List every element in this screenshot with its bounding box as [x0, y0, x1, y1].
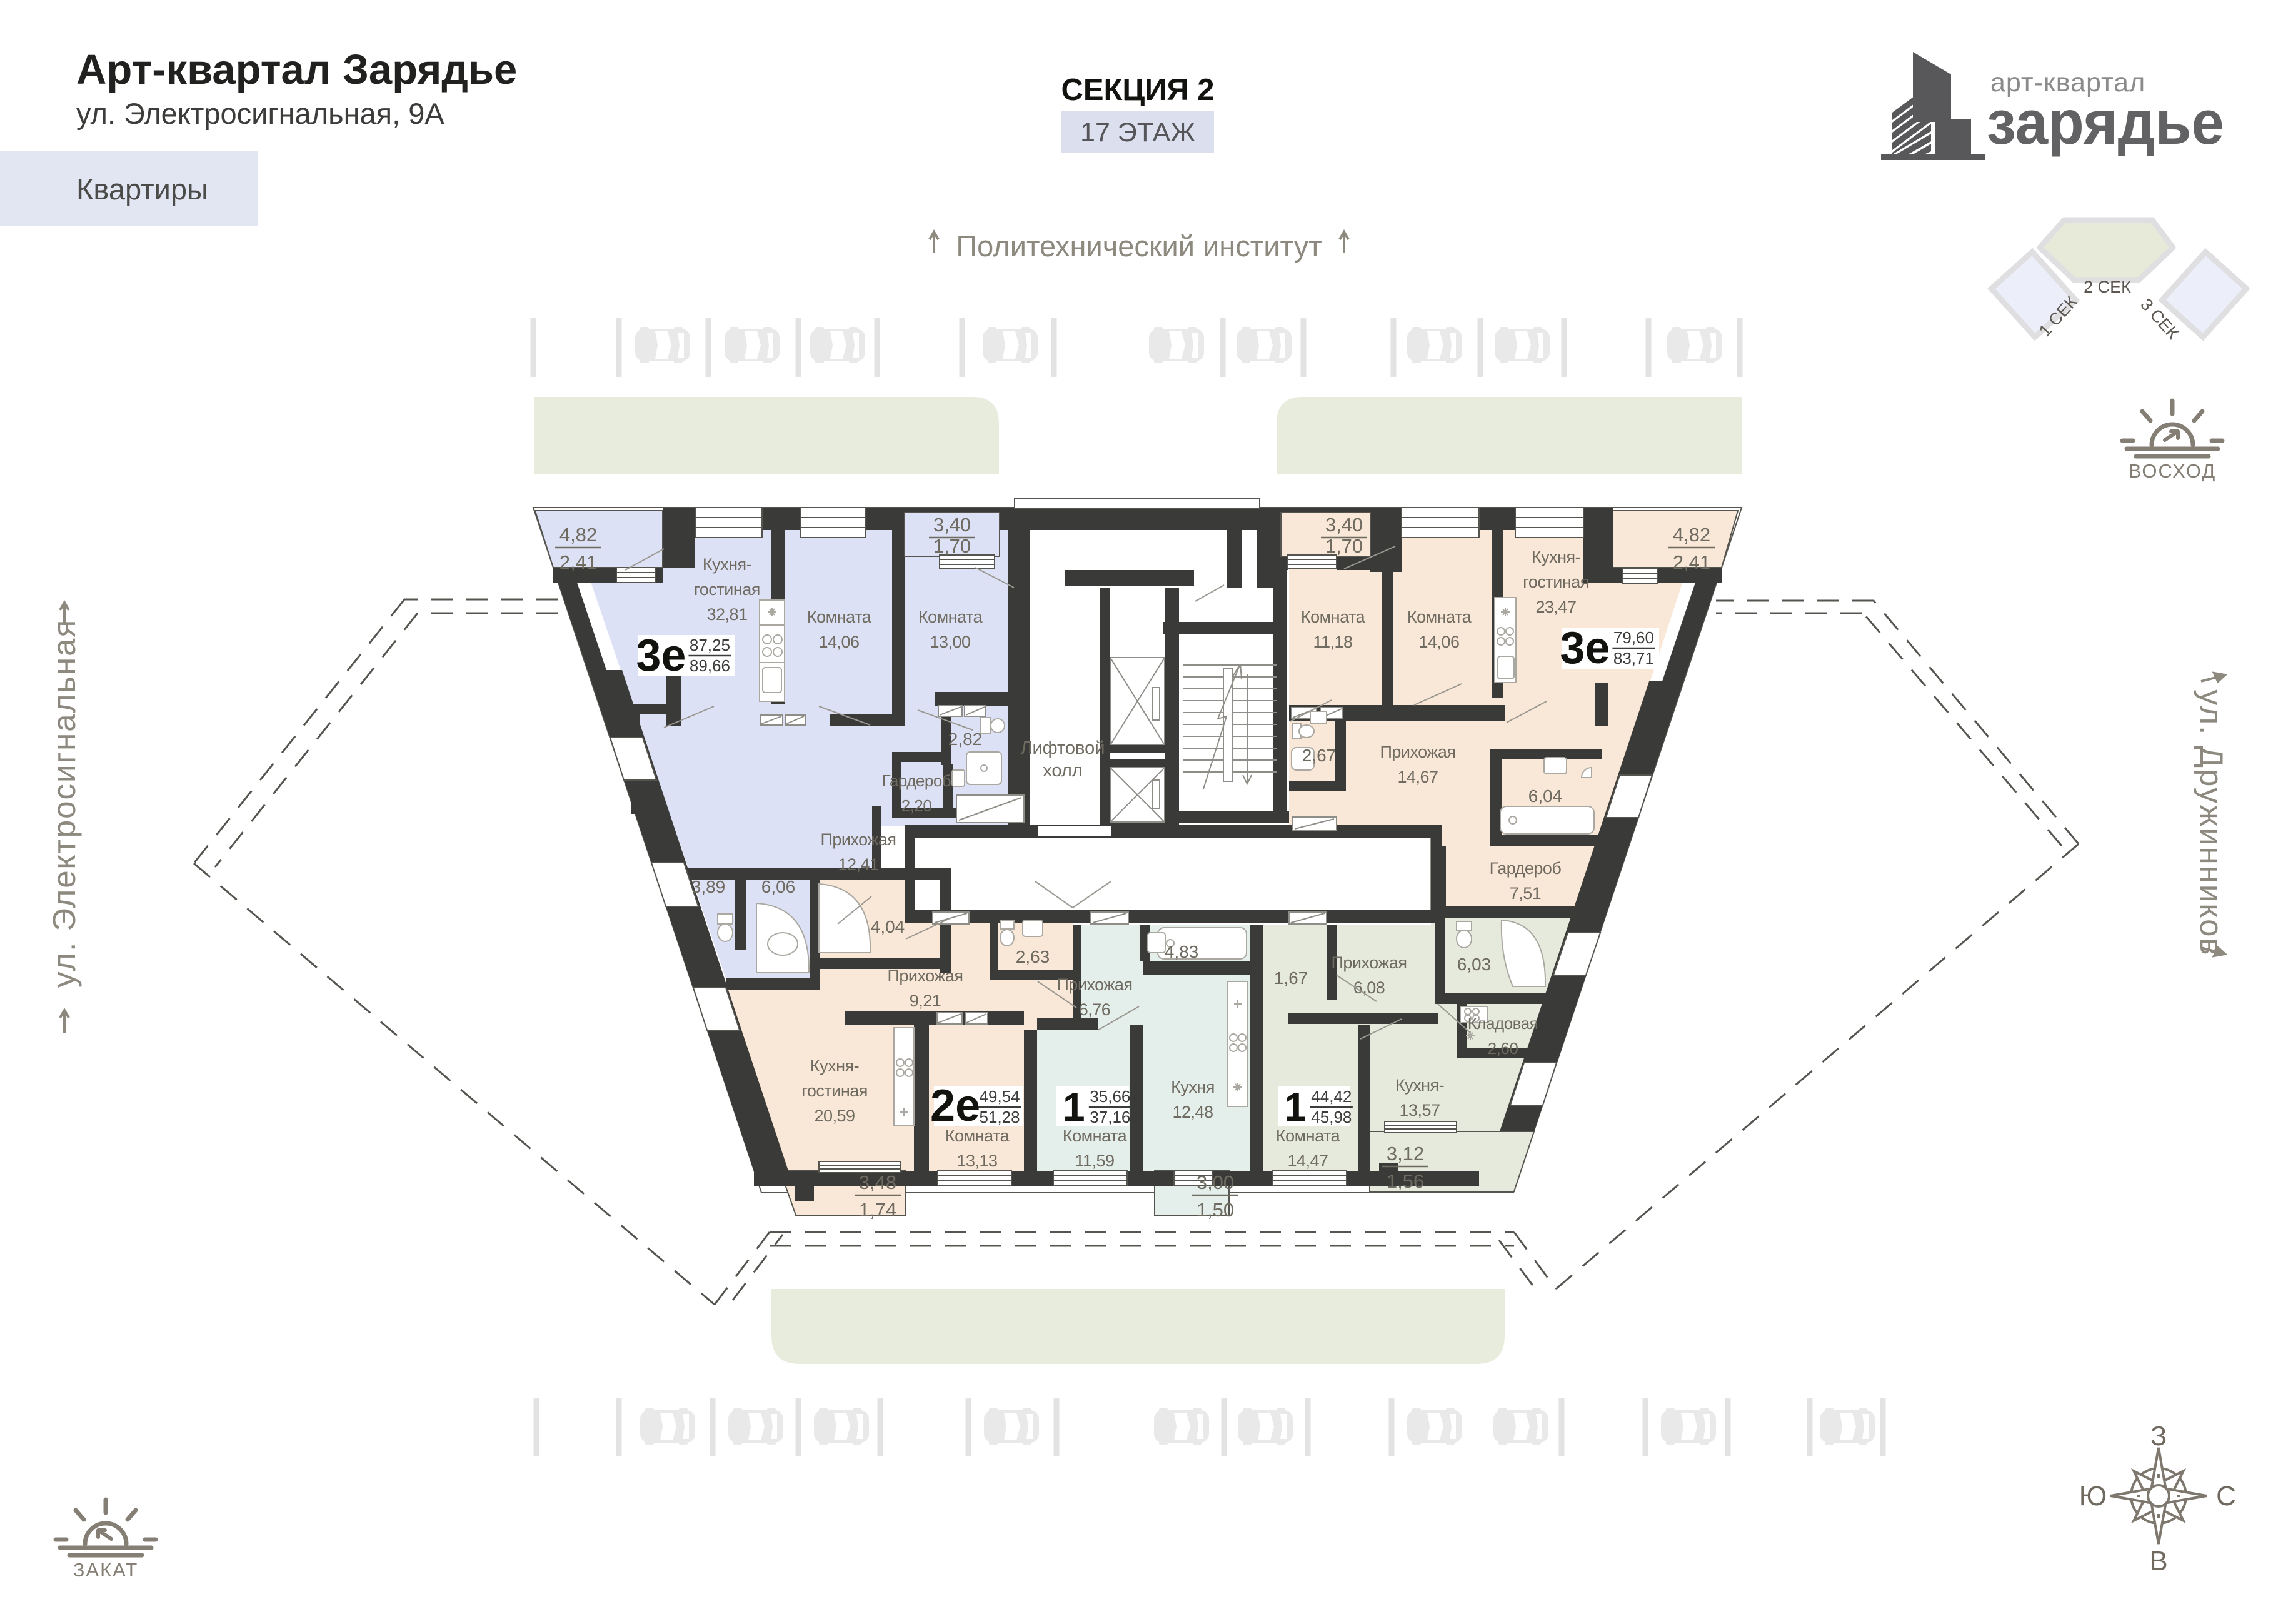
svg-text:Квартиры: Квартиры — [76, 173, 208, 206]
svg-text:9,21: 9,21 — [910, 991, 941, 1010]
svg-text:2,82: 2,82 — [948, 729, 983, 749]
svg-text:ВОСХОД: ВОСХОД — [2129, 460, 2216, 482]
svg-text:23,47: 23,47 — [1535, 598, 1576, 616]
svg-text:2 СЕК: 2 СЕК — [2084, 278, 2131, 296]
svg-text:6,76: 6,76 — [1079, 1000, 1111, 1019]
svg-text:32,81: 32,81 — [706, 605, 747, 624]
svg-text:1,50: 1,50 — [1197, 1199, 1234, 1221]
svg-text:Прихожая: Прихожая — [820, 830, 896, 849]
svg-text:Прихожая: Прихожая — [1331, 953, 1407, 972]
svg-text:3,12: 3,12 — [1387, 1143, 1424, 1165]
svg-text:12,41: 12,41 — [838, 855, 878, 874]
svg-text:4,83: 4,83 — [1165, 942, 1199, 961]
svg-text:3,00: 3,00 — [1197, 1171, 1234, 1193]
svg-text:13,00: 13,00 — [930, 633, 970, 651]
svg-text:ул. Электросигнальная: ул. Электросигнальная — [46, 619, 82, 988]
svg-text:79,60: 79,60 — [1613, 628, 1654, 647]
svg-text:гостиная: гостиная — [1523, 573, 1589, 591]
svg-text:Комната: Комната — [1063, 1126, 1128, 1145]
svg-text:Прихожая: Прихожая — [887, 966, 963, 985]
svg-text:Кухня-: Кухня- — [703, 555, 751, 574]
svg-text:14,06: 14,06 — [818, 633, 859, 651]
svg-text:4,82: 4,82 — [559, 524, 597, 546]
svg-text:Арт-квартал Зарядье: Арт-квартал Зарядье — [76, 46, 517, 93]
svg-text:3е: 3е — [1560, 623, 1610, 673]
svg-text:ЗАКАТ: ЗАКАТ — [73, 1559, 139, 1581]
svg-text:ул. Дружинников: ул. Дружинников — [2194, 689, 2229, 956]
svg-text:1: 1 — [1284, 1085, 1307, 1130]
svg-text:Комната: Комната — [918, 608, 983, 626]
svg-text:2,60: 2,60 — [1488, 1039, 1518, 1058]
svg-text:35,66: 35,66 — [1090, 1087, 1130, 1106]
svg-text:Комната: Комната — [1301, 608, 1366, 626]
svg-text:1,56: 1,56 — [1387, 1170, 1424, 1192]
svg-text:14,67: 14,67 — [1397, 768, 1438, 786]
svg-text:20,59: 20,59 — [814, 1106, 855, 1125]
svg-text:Лифтовой: Лифтовой — [1021, 738, 1105, 758]
svg-text:2,67: 2,67 — [1302, 746, 1337, 765]
svg-text:13,13: 13,13 — [956, 1151, 997, 1170]
svg-text:С: С — [2216, 1481, 2236, 1511]
svg-text:1,70: 1,70 — [1325, 535, 1363, 557]
svg-text:Гардероб: Гардероб — [882, 771, 951, 790]
svg-text:11,18: 11,18 — [1313, 633, 1352, 651]
svg-text:Кухня-: Кухня- — [1532, 548, 1580, 566]
svg-text:89,66: 89,66 — [690, 656, 730, 675]
svg-text:7,51: 7,51 — [1510, 884, 1542, 903]
svg-text:1,70: 1,70 — [933, 535, 971, 557]
svg-text:1,74: 1,74 — [859, 1199, 896, 1221]
svg-text:Кухня-: Кухня- — [1395, 1076, 1444, 1095]
svg-text:3,89: 3,89 — [691, 877, 726, 896]
svg-text:Кладовая: Кладовая — [1468, 1014, 1538, 1033]
svg-text:6,03: 6,03 — [1457, 955, 1492, 974]
svg-text:49,54: 49,54 — [980, 1087, 1020, 1106]
svg-text:2,41: 2,41 — [559, 551, 597, 573]
svg-text:12,48: 12,48 — [1172, 1103, 1213, 1121]
svg-text:14,06: 14,06 — [1418, 633, 1459, 651]
svg-text:Прихожая: Прихожая — [1056, 975, 1132, 994]
svg-text:44,42: 44,42 — [1311, 1087, 1352, 1106]
svg-text:гостиная: гостиная — [801, 1081, 868, 1100]
svg-text:2,41: 2,41 — [1673, 551, 1710, 573]
svg-text:Комната: Комната — [807, 608, 872, 626]
svg-text:3,40: 3,40 — [1325, 514, 1363, 536]
svg-text:6,04: 6,04 — [1528, 786, 1563, 806]
svg-text:3е: 3е — [636, 631, 686, 681]
svg-text:Политехнический институт: Политехнический институт — [956, 229, 1322, 263]
svg-text:13,57: 13,57 — [1399, 1101, 1440, 1120]
svg-text:17 ЭТАЖ: 17 ЭТАЖ — [1080, 118, 1195, 148]
svg-text:зарядье: зарядье — [1987, 88, 2224, 157]
svg-text:83,71: 83,71 — [1613, 649, 1654, 668]
svg-text:45,98: 45,98 — [1311, 1108, 1352, 1126]
svg-text:14,47: 14,47 — [1287, 1151, 1328, 1170]
svg-text:ул. Электросигнальная, 9А: ул. Электросигнальная, 9А — [76, 97, 444, 130]
svg-text:Комната: Комната — [1276, 1126, 1341, 1145]
svg-text:37,16: 37,16 — [1090, 1108, 1130, 1126]
svg-text:З: З — [2150, 1421, 2167, 1451]
svg-text:4,82: 4,82 — [1673, 524, 1710, 546]
svg-text:6,08: 6,08 — [1353, 978, 1385, 997]
svg-text:Комната: Комната — [1407, 608, 1472, 626]
svg-text:Ю: Ю — [2079, 1481, 2107, 1511]
svg-text:холл: холл — [1043, 761, 1083, 781]
svg-text:1: 1 — [1063, 1085, 1085, 1130]
svg-text:Прихожая: Прихожая — [1380, 743, 1455, 761]
svg-text:11,59: 11,59 — [1075, 1151, 1114, 1170]
svg-text:3,48: 3,48 — [859, 1171, 896, 1193]
svg-text:1,67: 1,67 — [1274, 968, 1308, 988]
svg-text:87,25: 87,25 — [690, 636, 730, 654]
svg-text:2,63: 2,63 — [1016, 947, 1050, 966]
svg-text:Кухня-: Кухня- — [810, 1056, 859, 1075]
svg-text:2е: 2е — [930, 1081, 980, 1131]
svg-text:СЕКЦИЯ 2: СЕКЦИЯ 2 — [1061, 73, 1214, 107]
svg-text:Комната: Комната — [945, 1126, 1010, 1145]
svg-text:4,04: 4,04 — [871, 917, 905, 936]
svg-text:6,06: 6,06 — [761, 877, 796, 896]
svg-text:Гардероб: Гардероб — [1490, 859, 1562, 878]
svg-text:2,20: 2,20 — [901, 796, 932, 815]
svg-text:51,28: 51,28 — [980, 1108, 1020, 1126]
svg-text:3,40: 3,40 — [933, 514, 971, 536]
svg-text:гостиная: гостиная — [694, 580, 760, 599]
svg-text:В: В — [2149, 1546, 2167, 1576]
svg-text:Кухня: Кухня — [1171, 1078, 1215, 1096]
